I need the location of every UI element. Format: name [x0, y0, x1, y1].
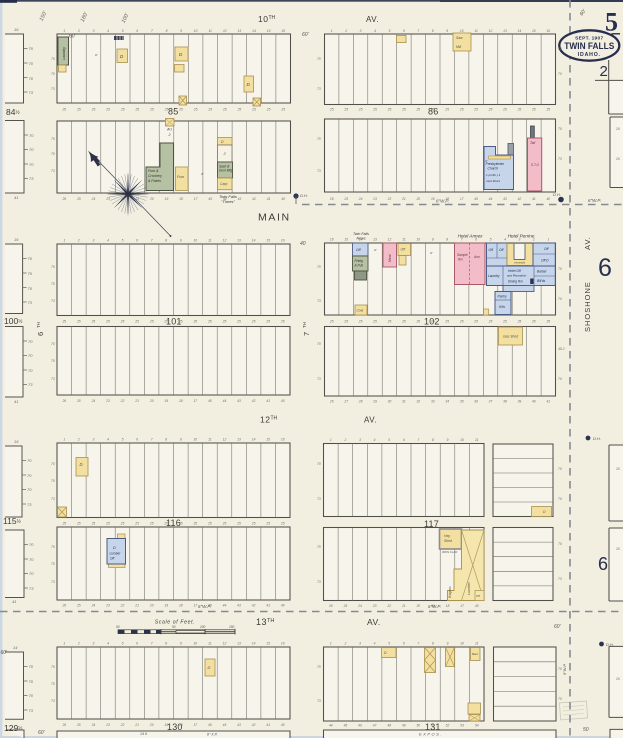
svg-text:70: 70: [558, 267, 562, 271]
svg-text:TH: TH: [271, 416, 278, 422]
svg-text:1 (unfin.) 1: 1 (unfin.) 1: [486, 173, 501, 177]
svg-text:70: 70: [51, 137, 55, 141]
svg-text:73: 73: [317, 169, 321, 173]
svg-text:Coal: Coal: [357, 309, 364, 313]
svg-text:6: 6: [36, 332, 45, 336]
svg-text:70: 70: [51, 665, 55, 669]
svg-text:Off D: Off D: [541, 259, 549, 263]
svg-text:TH: TH: [267, 618, 274, 624]
svg-text:73: 73: [51, 580, 55, 584]
svg-text:AV.: AV.: [367, 617, 381, 627]
svg-text:73: 73: [317, 699, 321, 703]
svg-text:Saw: Saw: [456, 36, 463, 40]
svg-text:50: 50: [172, 625, 176, 629]
svg-text:IRON CLAD: IRON CLAD: [442, 550, 457, 554]
svg-text:70: 70: [51, 545, 55, 549]
svg-text:Laundry: Laundry: [488, 274, 500, 278]
svg-text:73: 73: [29, 586, 34, 591]
svg-text:70: 70: [51, 479, 55, 483]
svg-text:70: 70: [51, 152, 55, 156]
svg-text:73: 73: [51, 87, 55, 91]
svg-text:70: 70: [27, 487, 32, 492]
svg-text:117: 117: [424, 519, 439, 529]
svg-text:73: 73: [51, 377, 55, 381]
svg-text:70: 70: [29, 664, 34, 669]
svg-text:Shed: Shed: [444, 539, 452, 543]
svg-text:70: 70: [28, 353, 33, 358]
svg-text:12: 12: [260, 415, 270, 425]
svg-text:70: 70: [558, 72, 562, 76]
svg-text:73: 73: [51, 299, 55, 303]
svg-text:70: 70: [28, 368, 33, 373]
svg-text:60': 60': [38, 730, 46, 736]
svg-text:26: 26: [615, 547, 620, 551]
svg-text:D.H.: D.H.: [300, 193, 308, 198]
svg-text:Rm: Rm: [458, 258, 463, 262]
svg-text:Gas Shed: Gas Shed: [503, 335, 518, 339]
svg-text:14: 14: [13, 645, 18, 650]
svg-text:70: 70: [558, 127, 562, 131]
svg-text:Printg: Printg: [355, 259, 364, 263]
svg-text:Barber: Barber: [537, 270, 548, 274]
svg-text:70: 70: [558, 697, 562, 701]
svg-text:70: 70: [29, 61, 34, 66]
svg-text:50: 50: [116, 625, 120, 629]
svg-text:73: 73: [558, 157, 562, 161]
svg-text:26: 26: [615, 127, 620, 131]
svg-text:EXPOS.: EXPOS.: [419, 732, 443, 737]
svg-text:26: 26: [615, 677, 620, 681]
svg-text:D: D: [113, 546, 116, 550]
svg-text:D.H.: D.H.: [593, 436, 601, 441]
svg-text:and Reception: and Reception: [507, 274, 527, 278]
svg-text:85: 85: [168, 107, 178, 117]
svg-text:10: 10: [258, 14, 268, 24]
svg-text:70: 70: [317, 545, 321, 549]
svg-text:16: 16: [14, 439, 19, 444]
svg-text:D: D: [80, 462, 83, 467]
svg-text:6: 6: [598, 554, 608, 574]
svg-text:26: 26: [615, 157, 620, 161]
svg-text:Mill: Mill: [456, 45, 461, 49]
svg-text:70: 70: [29, 557, 34, 562]
svg-text:70: 70: [317, 665, 321, 669]
svg-text:41: 41: [12, 599, 16, 604]
svg-text:70: 70: [28, 339, 33, 344]
svg-text:70: 70: [51, 359, 55, 363]
svg-text:Hay: Hay: [444, 534, 450, 538]
svg-text:Lumber: Lumber: [467, 581, 471, 595]
svg-text:Church: Church: [488, 167, 499, 171]
svg-text:60': 60': [1, 650, 9, 656]
svg-text:Tab': Tab': [530, 141, 536, 145]
svg-text:Furn: Furn: [177, 175, 184, 179]
svg-text:40: 40: [300, 241, 306, 247]
svg-text:13: 13: [256, 617, 267, 627]
svg-text:70: 70: [558, 667, 562, 671]
svg-text:IDAHO.: IDAHO.: [578, 52, 601, 58]
svg-text:Meat: Meat: [388, 253, 392, 262]
svg-text:Sample: Sample: [457, 253, 468, 257]
svg-text:16: 16: [14, 237, 19, 242]
svg-text:SHOSHONE: SHOSHONE: [583, 281, 592, 332]
svg-text:70: 70: [29, 162, 34, 167]
svg-text:Lumber: Lumber: [110, 552, 122, 556]
svg-text:45.2: 45.2: [558, 347, 565, 351]
svg-text:& Pub: & Pub: [355, 264, 364, 268]
svg-text:70: 70: [51, 342, 55, 346]
svg-text:70: 70: [317, 462, 321, 466]
svg-text:TH: TH: [269, 15, 276, 21]
svg-text:150: 150: [229, 625, 235, 629]
svg-text:8" X.P.: 8" X.P.: [207, 733, 218, 737]
svg-text:73: 73: [317, 299, 321, 303]
svg-text:D.H.: D.H.: [553, 192, 561, 197]
svg-text:AV.: AV.: [366, 15, 379, 24]
svg-text:70: 70: [27, 473, 32, 478]
svg-text:Carp: Carp: [220, 182, 227, 186]
svg-text:70: 70: [29, 693, 34, 698]
svg-text:60': 60': [554, 624, 562, 630]
svg-text:Hotel Off: Hotel Off: [508, 269, 522, 273]
svg-text:73: 73: [29, 708, 34, 713]
svg-text:100: 100: [200, 625, 206, 629]
svg-text:7: 7: [302, 332, 311, 336]
svg-text:70: 70: [29, 147, 34, 152]
svg-text:73: 73: [51, 699, 55, 703]
svg-text:70: 70: [317, 265, 321, 269]
svg-text:mort.floors: mort.floors: [486, 179, 501, 183]
svg-text:Pantry: Pantry: [498, 295, 508, 299]
svg-text:Wagons: Wagons: [448, 586, 452, 598]
svg-text:70: 70: [51, 282, 55, 286]
svg-text:50: 50: [583, 727, 589, 733]
svg-text:73: 73: [51, 169, 55, 173]
svg-text:70: 70: [558, 542, 562, 546]
svg-text:60': 60': [69, 34, 77, 40]
svg-text:70: 70: [29, 133, 34, 138]
svg-text:70: 70: [29, 679, 34, 684]
svg-text:Twin Falls: Twin Falls: [353, 232, 369, 236]
svg-text:70: 70: [51, 462, 55, 466]
svg-text:70: 70: [27, 458, 32, 463]
svg-text:73: 73: [317, 377, 321, 381]
svg-text:70: 70: [558, 377, 562, 381]
svg-text:70: 70: [28, 286, 33, 291]
svg-text:Barn: Barn: [472, 652, 479, 656]
svg-text:6"W.P.: 6"W.P.: [562, 663, 567, 675]
svg-text:Hotel Perrine: Hotel Perrine: [508, 234, 535, 239]
svg-text:TH: TH: [302, 322, 307, 328]
svg-text:73: 73: [558, 577, 562, 581]
svg-text:14 6: 14 6: [140, 732, 147, 736]
svg-text:2: 2: [600, 63, 608, 80]
svg-text:Furn &: Furn &: [148, 169, 159, 173]
svg-text:AU: AU: [166, 128, 172, 132]
svg-text:MAIN: MAIN: [258, 212, 291, 224]
svg-text:70: 70: [51, 562, 55, 566]
svg-text:73: 73: [27, 502, 32, 507]
svg-text:70: 70: [51, 57, 55, 61]
svg-text:Bill'ds: Bill'ds: [537, 279, 546, 283]
svg-text:73: 73: [28, 300, 33, 305]
svg-text:AV.: AV.: [583, 236, 592, 250]
svg-text:73: 73: [29, 176, 34, 181]
svg-text:41: 41: [14, 195, 18, 200]
svg-text:Door Mfg: Door Mfg: [219, 169, 232, 173]
svg-text:veranda: veranda: [514, 261, 525, 265]
svg-text:Crockery: Crockery: [148, 174, 162, 178]
svg-text:AV.: AV.: [364, 416, 377, 425]
svg-text:S.T.O: S.T.O: [531, 163, 540, 167]
svg-text:D: D: [208, 665, 211, 670]
svg-text:73: 73: [29, 90, 34, 95]
svg-text:6"W.P.: 6"W.P.: [588, 198, 601, 203]
svg-text:TH: TH: [36, 322, 41, 328]
svg-text:60': 60': [302, 32, 310, 38]
svg-text:70: 70: [51, 265, 55, 269]
svg-text:70: 70: [317, 342, 321, 346]
svg-text:70: 70: [28, 256, 33, 261]
svg-text:Kit'n: Kit'n: [499, 305, 505, 309]
svg-text:& Paints: & Paints: [148, 179, 161, 183]
svg-text:6: 6: [598, 254, 612, 282]
svg-text:70: 70: [29, 571, 34, 576]
svg-text:26: 26: [615, 467, 620, 471]
svg-text:16: 16: [14, 27, 19, 32]
svg-text:70: 70: [29, 46, 34, 51]
svg-text:41: 41: [14, 399, 18, 404]
svg-text:73: 73: [51, 497, 55, 501]
svg-text:2: 2: [168, 133, 171, 137]
svg-text:Ann: Ann: [473, 255, 480, 259]
svg-text:73: 73: [28, 382, 33, 387]
svg-text:73: 73: [317, 497, 321, 501]
svg-text:73: 73: [317, 87, 321, 91]
svg-text:TWIN FALLS: TWIN FALLS: [564, 41, 614, 51]
svg-text:70: 70: [29, 542, 34, 547]
svg-text:70: 70: [51, 72, 55, 76]
svg-text:70: 70: [558, 297, 562, 301]
svg-text:Laundry: Laundry: [62, 47, 66, 60]
svg-text:Dining Rm: Dining Rm: [508, 280, 523, 284]
svg-text:70: 70: [317, 137, 321, 141]
svg-text:70: 70: [29, 76, 34, 81]
svg-text:70: 70: [317, 57, 321, 61]
svg-text:70: 70: [51, 682, 55, 686]
svg-text:70: 70: [558, 47, 562, 51]
svg-text:70: 70: [28, 271, 33, 276]
svg-text:70: 70: [558, 467, 562, 471]
svg-text:Presbyterian: Presbyterian: [486, 162, 505, 166]
svg-text:70: 70: [558, 497, 562, 501]
svg-text:73: 73: [317, 580, 321, 584]
